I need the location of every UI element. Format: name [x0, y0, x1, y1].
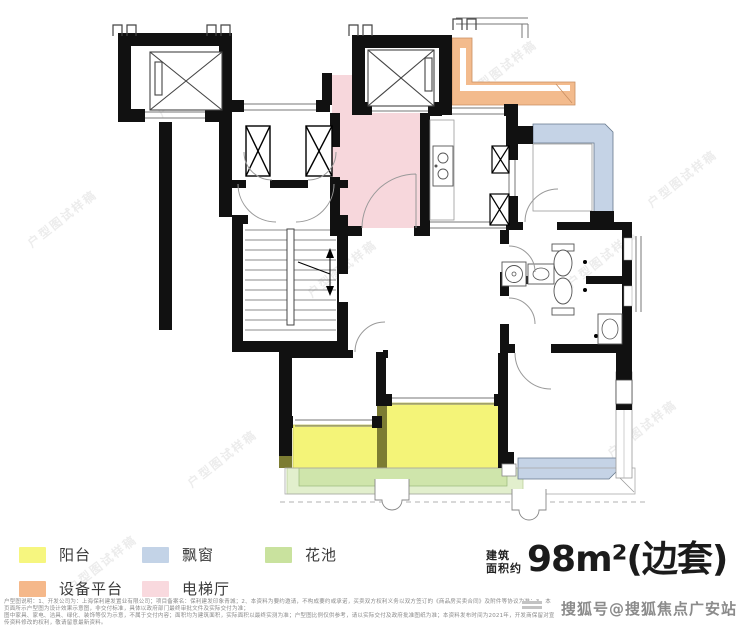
area-value: 98m²(边套)	[527, 540, 727, 580]
equipment-platform-swatch	[19, 581, 46, 597]
drain-scallop	[375, 479, 409, 510]
kitchen-ducts	[490, 146, 509, 225]
zone-bay-window-top	[533, 124, 613, 224]
duct-shafts	[246, 126, 332, 176]
legend-item-flower-bed: 花池	[265, 544, 388, 565]
footer-watermark: 搜狐号@搜狐焦点广安站	[561, 598, 737, 619]
stair-rail	[287, 229, 334, 325]
area-prefix-line1: 建筑	[486, 549, 522, 562]
balcony-swatch	[19, 547, 46, 563]
legend-item-elevator-hall: 电梯厅	[142, 578, 265, 599]
bay-window-swatch	[142, 547, 169, 563]
elevator-2-cab	[368, 50, 434, 106]
legend-label: 设备平台	[59, 578, 123, 599]
disclaimer-line-1: 户型图说明：1、开发公司为：上海保利建发置业有限公司；项目备案名：保利建发印象青…	[4, 599, 556, 613]
legend-row-1: 阳台 飘窗 花池	[19, 544, 388, 565]
legend-label: 阳台	[59, 544, 91, 565]
elevator-hall-swatch	[142, 581, 169, 597]
zone-equipment-platform	[452, 38, 575, 105]
area-label: 建筑 面积约 98m²(边套)	[486, 540, 727, 580]
flower-bed-swatch	[265, 547, 292, 563]
balcony-divider	[377, 406, 387, 468]
floorplan-page: 户型图试样稿户型图试样稿户型图试样稿户型图试样稿户型图试样稿户型图试样稿户型图试…	[0, 0, 740, 625]
legend-label: 电梯厅	[182, 578, 230, 599]
floor-plan-svg	[0, 0, 740, 532]
zone-balcony-right	[386, 403, 500, 468]
legend-item-equipment-platform: 设备平台	[19, 578, 142, 599]
legend-row-2: 设备平台 电梯厅	[19, 578, 388, 599]
vanity-sink	[528, 264, 554, 284]
area-prefix-line2: 面积约	[486, 562, 522, 575]
zone-bay-window-master	[518, 458, 618, 479]
drain-scallop	[512, 489, 546, 520]
zone-balcony-left	[293, 425, 383, 468]
legend-item-bay-window: 飘窗	[142, 544, 265, 565]
disclaimer: 户型图说明：1、开发公司为：上海保利建发置业有限公司；项目备案名：保利建发印象青…	[4, 599, 556, 625]
toilet	[554, 250, 572, 276]
area-prefix: 建筑 面积约	[486, 549, 522, 580]
legend-item-balcony: 阳台	[19, 544, 142, 565]
floor-plan	[0, 0, 740, 532]
toilet	[554, 278, 572, 304]
kitchen-fixtures	[430, 120, 454, 220]
elevator-1-cab	[150, 52, 222, 110]
legend-label: 花池	[305, 544, 337, 565]
legend-label: 飘窗	[182, 544, 214, 565]
footer-watermark-stamp	[522, 601, 542, 611]
disclaimer-line-2: 图中家具、家电、洁具、绿化、装饰等仅为示意，不属于交付内容；面积均为建筑面积，实…	[4, 613, 556, 625]
